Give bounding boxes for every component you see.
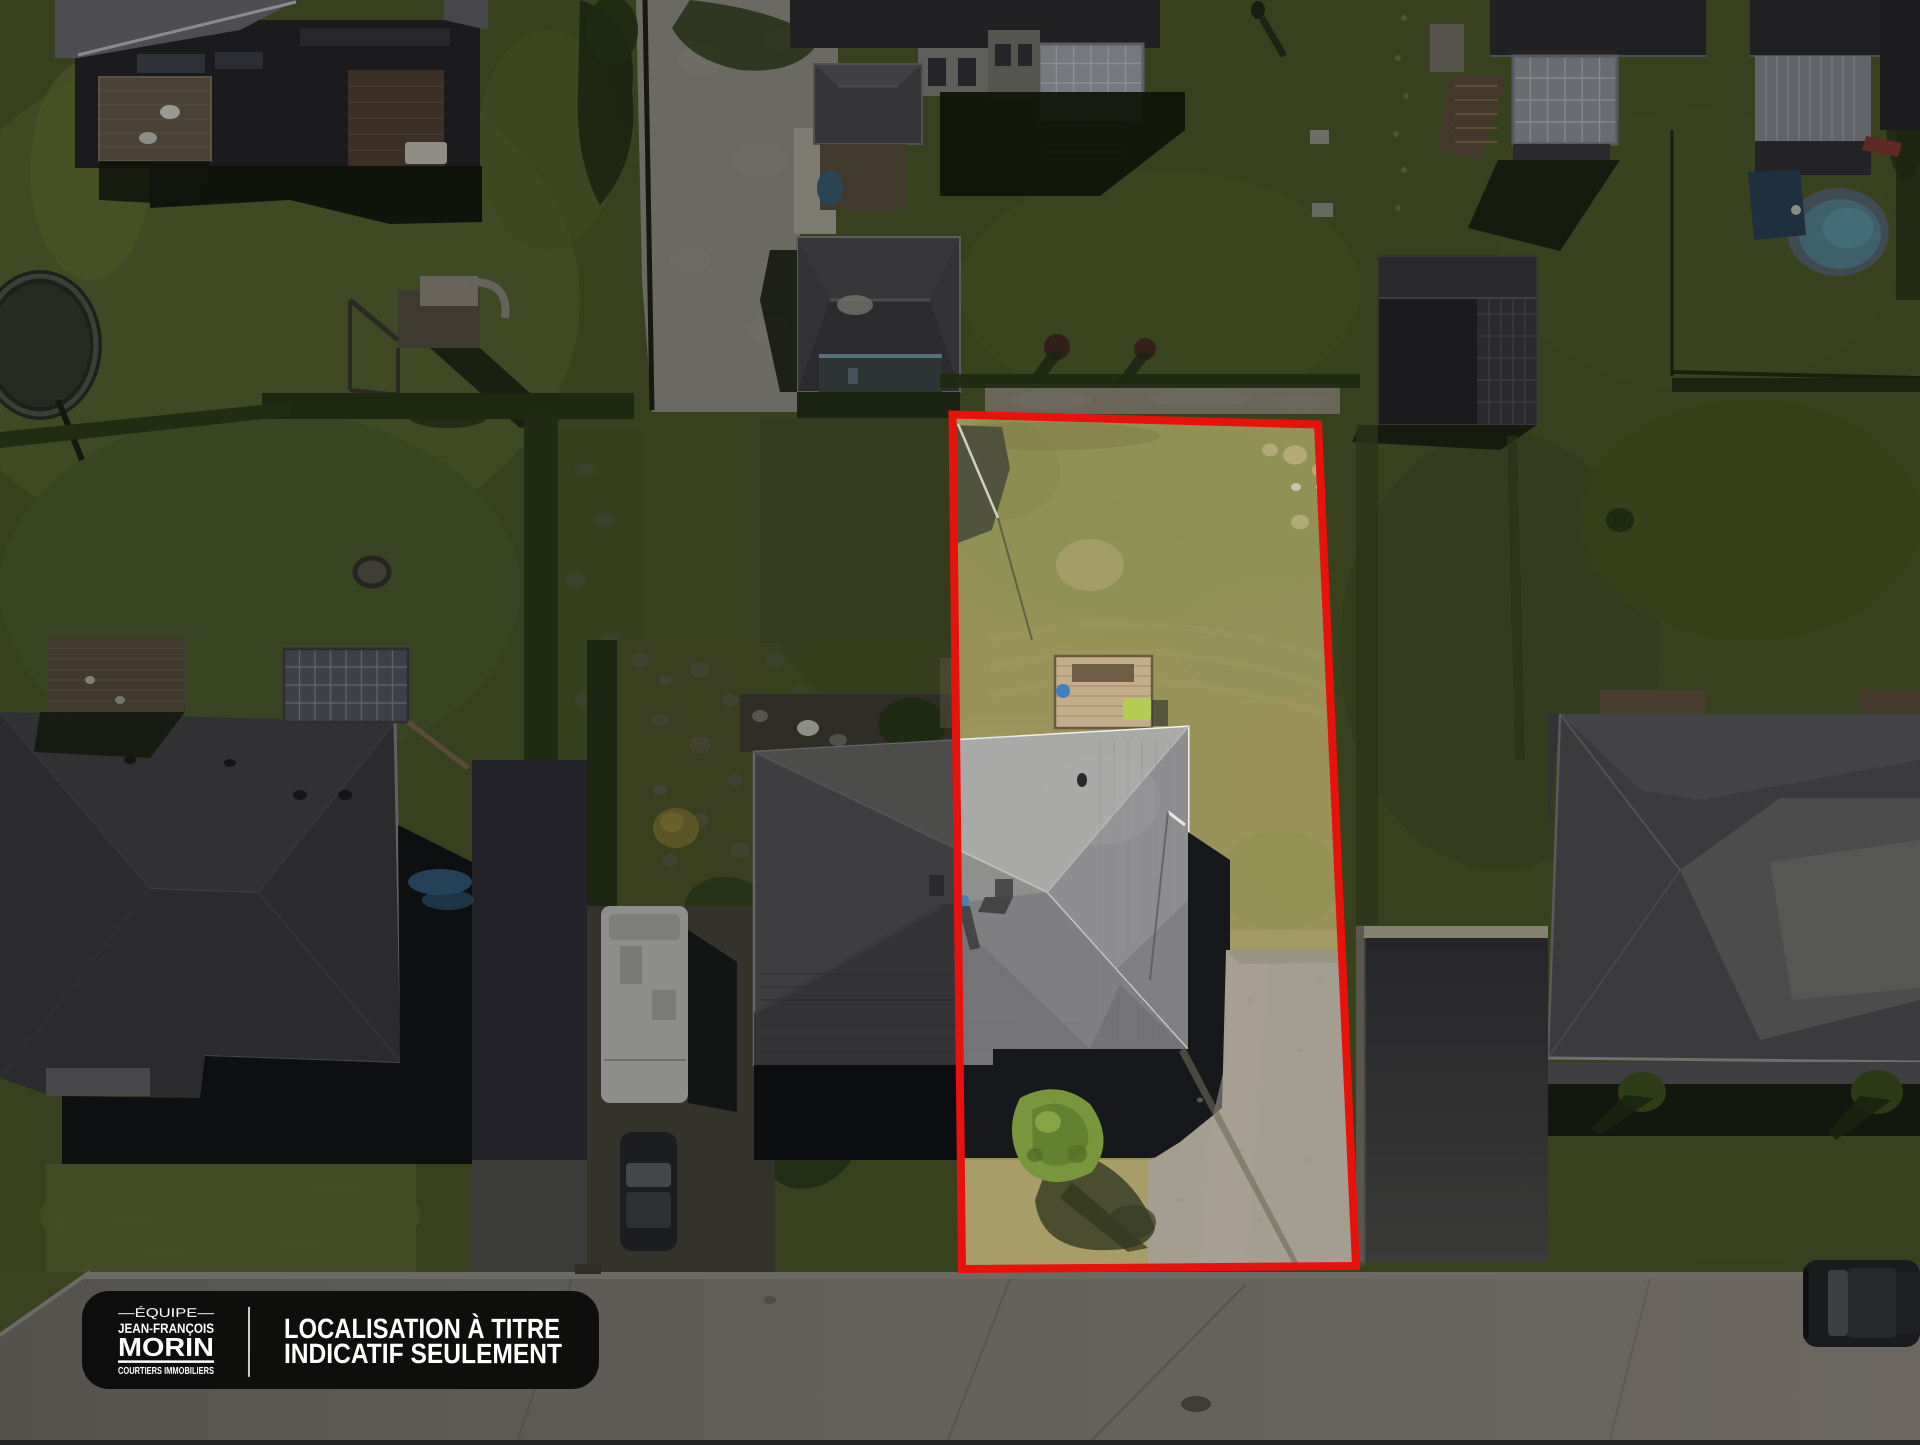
svg-text:INDICATIF SEULEMENT: INDICATIF SEULEMENT — [284, 1338, 562, 1369]
svg-text:COURTIERS IMMOBILIERS: COURTIERS IMMOBILIERS — [118, 1366, 214, 1377]
svg-text:—ÉQUIPE—: —ÉQUIPE— — [118, 1305, 215, 1320]
svg-text:MORIN: MORIN — [118, 1332, 214, 1362]
